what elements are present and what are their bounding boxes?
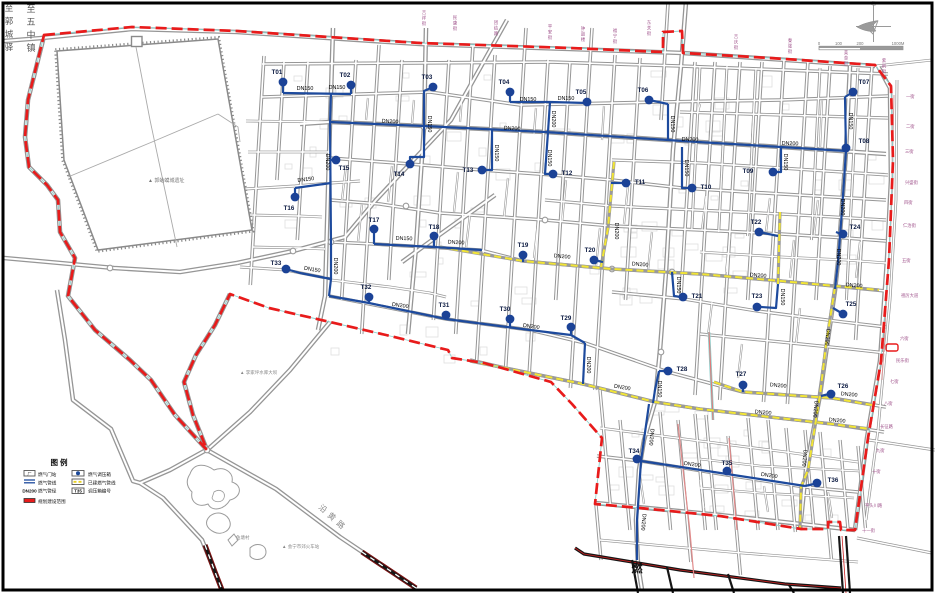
svg-text:DN200: DN200: [324, 154, 330, 171]
svg-text:T13: T13: [463, 167, 474, 174]
svg-text:街: 街: [422, 20, 427, 27]
svg-text:T18: T18: [429, 224, 440, 231]
svg-text:T04: T04: [499, 79, 510, 86]
svg-text:DN200: DN200: [782, 141, 799, 148]
svg-text:T28: T28: [677, 366, 688, 373]
svg-text:街: 街: [613, 38, 618, 45]
svg-text:调压箱编号: 调压箱编号: [88, 488, 111, 495]
svg-text:DN150: DN150: [779, 289, 785, 306]
svg-text:T05: T05: [576, 89, 587, 96]
svg-text:祖厉大道: 祖厉大道: [901, 292, 919, 299]
svg-text:T21: T21: [692, 293, 703, 300]
svg-text:T33: T33: [271, 260, 282, 267]
svg-text:DN150: DN150: [546, 150, 552, 167]
svg-text:DN150: DN150: [329, 85, 346, 91]
svg-text:▲ 郭蛤蟆城遗址: ▲ 郭蛤蟆城遗址: [148, 177, 184, 184]
svg-text:DN150: DN150: [396, 236, 413, 243]
svg-text:T01: T01: [272, 69, 283, 76]
svg-text:T10: T10: [701, 184, 712, 191]
svg-text:DN150: DN150: [683, 160, 689, 177]
svg-text:T11: T11: [635, 179, 646, 186]
svg-text:DN200: DN200: [504, 126, 521, 133]
svg-text:十街: 十街: [872, 468, 881, 475]
svg-text:T22: T22: [751, 219, 762, 226]
svg-text:燃气调压箱: 燃气调压箱: [88, 471, 111, 478]
svg-text:燃气门站: 燃气门站: [38, 471, 57, 478]
svg-text:DN150: DN150: [426, 116, 432, 133]
svg-text:DN200: DN200: [631, 261, 648, 268]
svg-text:街: 街: [734, 44, 739, 51]
svg-text:DN200: DN200: [613, 223, 619, 240]
svg-text:DN150: DN150: [297, 86, 314, 92]
svg-text:中: 中: [26, 29, 35, 40]
svg-text:T30: T30: [500, 306, 511, 313]
svg-text:民乐街: 民乐街: [896, 357, 910, 364]
svg-text:100: 100: [835, 41, 843, 46]
svg-text:燃气管径: 燃气管径: [38, 488, 57, 495]
svg-text:DN200: DN200: [682, 137, 699, 144]
svg-text:T23: T23: [752, 293, 763, 300]
svg-text:DN150: DN150: [656, 381, 662, 398]
svg-text:DN200: DN200: [749, 272, 766, 279]
svg-text:T20: T20: [585, 247, 596, 254]
svg-text:三街: 三街: [905, 148, 914, 155]
svg-text:DN150: DN150: [520, 97, 537, 103]
svg-text:平头川路: 平头川路: [865, 502, 883, 509]
svg-text:街: 街: [453, 25, 458, 32]
svg-text:T29: T29: [561, 315, 572, 322]
svg-text:T19: T19: [518, 242, 529, 249]
svg-text:T25: T25: [846, 301, 857, 308]
svg-text:DN150: DN150: [493, 145, 499, 162]
svg-text:街: 街: [647, 30, 652, 37]
svg-text:DN200: DN200: [585, 357, 591, 374]
svg-text:DN150: DN150: [675, 277, 681, 294]
svg-text:规划建设范围: 规划建设范围: [38, 498, 66, 505]
svg-text:T08: T08: [859, 138, 870, 145]
svg-text:T15: T15: [339, 165, 350, 172]
svg-text:已建燃气管线: 已建燃气管线: [88, 480, 116, 487]
svg-text:DN200: DN200: [22, 489, 37, 494]
svg-text:T07: T07: [859, 79, 870, 86]
svg-text:DN150: DN150: [558, 96, 575, 102]
svg-text:T31: T31: [439, 302, 450, 309]
svg-text:T09: T09: [743, 168, 754, 175]
svg-text:图例: 图例: [51, 457, 70, 467]
svg-text:DN200: DN200: [332, 258, 338, 275]
svg-text:街: 街: [548, 34, 553, 41]
svg-text:街: 街: [882, 68, 887, 75]
svg-text:康: 康: [453, 20, 458, 26]
svg-text:T12: T12: [562, 170, 573, 177]
svg-text:驿: 驿: [5, 42, 14, 52]
svg-text:DN200: DN200: [839, 199, 845, 216]
svg-text:T24: T24: [850, 224, 861, 231]
svg-text:镇: 镇: [26, 42, 35, 53]
svg-text:T16: T16: [284, 205, 295, 212]
svg-text:五: 五: [26, 17, 35, 27]
svg-text:街: 街: [788, 48, 793, 55]
svg-text:二街: 二街: [906, 123, 915, 130]
svg-text:长征路: 长征路: [880, 423, 894, 430]
svg-text:街: 街: [844, 60, 849, 67]
svg-text:兴盛街: 兴盛街: [905, 179, 919, 186]
svg-text:DN150: DN150: [847, 113, 853, 130]
svg-text:1000M: 1000M: [892, 41, 905, 46]
svg-text:T26: T26: [838, 383, 849, 390]
svg-text:十一街: 十一街: [862, 527, 876, 534]
svg-text:DN200: DN200: [448, 240, 465, 247]
svg-text:DN200: DN200: [845, 282, 862, 289]
svg-text:T03: T03: [422, 74, 433, 81]
svg-text:五街: 五街: [902, 257, 911, 264]
svg-text:DN200: DN200: [550, 111, 556, 128]
svg-text:一街: 一街: [906, 93, 915, 100]
svg-text:T36: T36: [828, 477, 839, 484]
svg-text:DN150: DN150: [669, 116, 675, 133]
svg-text:▲ 会宁市郊火车站: ▲ 会宁市郊火车站: [282, 543, 320, 550]
svg-text:七街: 七街: [890, 378, 899, 385]
svg-text:东: 东: [647, 19, 652, 25]
svg-text:200: 200: [857, 41, 865, 46]
svg-text:紫: 紫: [882, 58, 887, 63]
svg-text:九街: 九街: [876, 447, 885, 454]
svg-text:八街: 八街: [884, 400, 893, 407]
svg-text:T35: T35: [722, 460, 733, 467]
svg-text:宁: 宁: [613, 33, 617, 39]
svg-text:T14: T14: [394, 171, 405, 178]
svg-text:仁治街: 仁治街: [903, 222, 917, 229]
svg-text:T35: T35: [74, 489, 82, 494]
svg-text:DN200: DN200: [835, 249, 841, 266]
svg-text:楼: 楼: [581, 36, 586, 43]
svg-text:T34: T34: [629, 448, 640, 455]
svg-text:T32: T32: [361, 284, 372, 291]
svg-text:T17: T17: [369, 217, 380, 224]
svg-text:六街: 六街: [900, 335, 909, 342]
svg-text:四街: 四街: [904, 199, 913, 206]
svg-text:燃气管线: 燃气管线: [38, 480, 57, 487]
svg-text:燃: 燃: [631, 561, 644, 575]
svg-text:DN150: DN150: [782, 154, 788, 171]
svg-text:DN200: DN200: [382, 119, 399, 126]
svg-text:T27: T27: [736, 371, 747, 378]
svg-text:郭: 郭: [5, 16, 14, 26]
svg-text:至: 至: [26, 4, 35, 14]
svg-text:城: 城: [5, 29, 14, 39]
svg-text:▲ 李家坪水库大坝: ▲ 李家坪水库大坝: [240, 369, 278, 376]
svg-text:T06: T06: [638, 87, 649, 94]
svg-text:路: 路: [494, 30, 499, 37]
svg-text:T02: T02: [340, 72, 351, 79]
svg-text:鱼塘村: 鱼塘村: [236, 534, 250, 541]
